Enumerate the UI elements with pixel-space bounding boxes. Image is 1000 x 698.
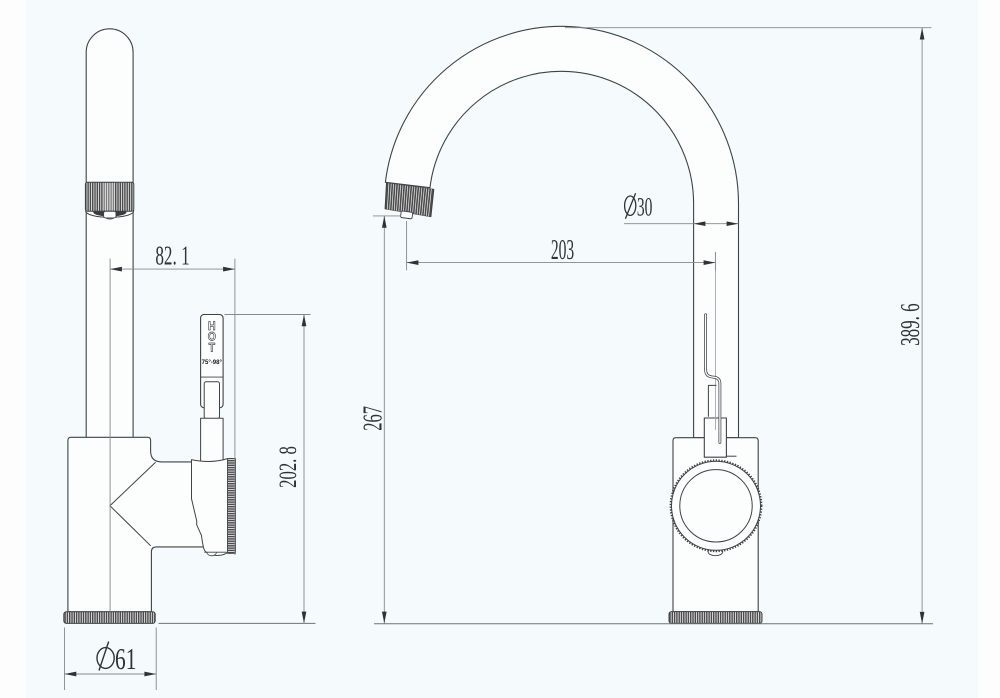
svg-text:389. 6: 389. 6 bbox=[895, 303, 925, 346]
svg-text:203: 203 bbox=[551, 234, 574, 265]
svg-text:267: 267 bbox=[357, 406, 387, 431]
svg-text:75°-98°: 75°-98° bbox=[202, 358, 223, 366]
svg-text:T: T bbox=[209, 342, 215, 355]
svg-text:61: 61 bbox=[115, 643, 136, 677]
svg-text:30: 30 bbox=[637, 191, 653, 222]
svg-text:202. 8: 202. 8 bbox=[274, 446, 302, 488]
svg-text:82. 1: 82. 1 bbox=[155, 239, 189, 270]
